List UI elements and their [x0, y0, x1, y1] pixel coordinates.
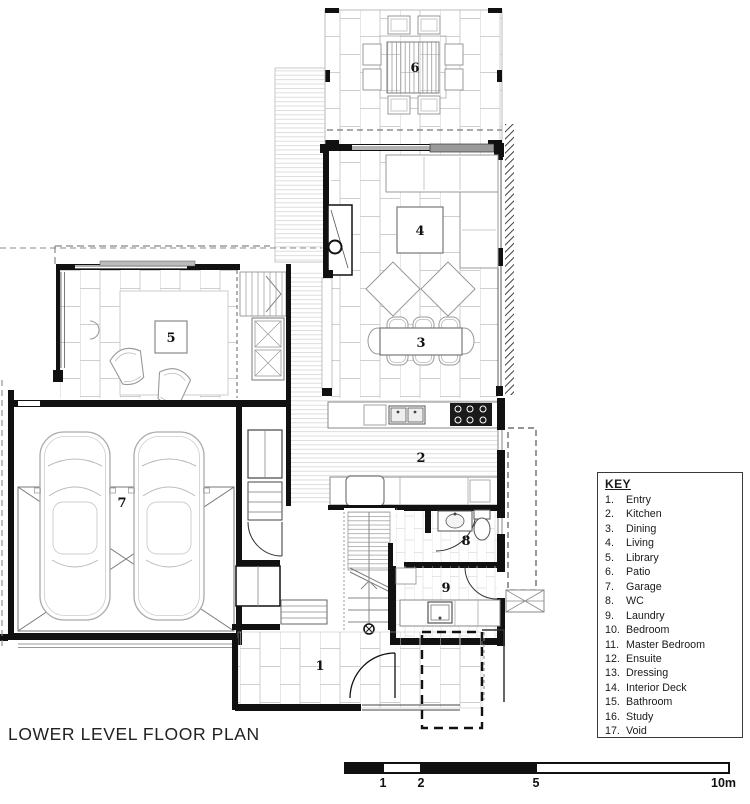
deck-strip [275, 68, 329, 262]
garage-area [0, 390, 291, 648]
patio-chair [418, 96, 440, 114]
entry-steps [281, 600, 327, 624]
room-label-dining: 3 [416, 336, 425, 351]
fireplace [323, 205, 352, 278]
patio-chair [418, 16, 440, 34]
patio-chair [363, 69, 381, 90]
scale-segment [383, 763, 421, 773]
scale-tick-label: 10m [711, 776, 736, 790]
vanity-sink [438, 511, 472, 531]
entry-area [232, 630, 504, 711]
car [35, 432, 116, 620]
room-label-patio: 6 [410, 61, 419, 76]
key-item: 5.Library [605, 551, 737, 565]
laundry-sink [428, 602, 452, 623]
key-item: 3.Dining [605, 522, 737, 536]
key-item: 12.Ensuite [605, 652, 737, 666]
scale-segment [421, 763, 536, 773]
key-item: 17.Void [605, 724, 737, 738]
kitchen-sink [389, 406, 425, 424]
patio-area [325, 8, 502, 146]
plan-title: LOWER LEVEL FLOOR PLAN [8, 724, 260, 745]
key-item: 6.Patio [605, 565, 737, 579]
key-panel: KEY 1.Entry 2.Kitchen 3.Dining 4.Living … [597, 472, 743, 738]
key-item: 7.Garage [605, 580, 737, 594]
patio-chair [363, 44, 381, 65]
room-label-living: 4 [415, 224, 424, 239]
main-stairs [344, 508, 395, 645]
shelving [252, 318, 284, 380]
side-window-box [506, 590, 544, 612]
room-label-kitchen: 2 [416, 451, 425, 466]
patio-chair [388, 16, 410, 34]
mini-stairs [248, 482, 282, 520]
key-item: 13.Dressing [605, 666, 737, 680]
key-item: 9.Laundry [605, 609, 737, 623]
key-item: 15.Bathroom [605, 695, 737, 709]
key-item: 10.Bedroom [605, 623, 737, 637]
key-item: 1.Entry [605, 493, 737, 507]
floor-plan-page: 6 4 3 2 5 7 8 9 1 KEY 1.Entry 2.Kitchen … [0, 0, 750, 804]
kitchen-island [328, 402, 500, 428]
patio-chair [445, 44, 463, 65]
scale-tick-label: 1 [380, 776, 387, 790]
laundry-bench [400, 600, 500, 626]
fridge [346, 476, 384, 506]
patio-chair [445, 69, 463, 90]
key-item: 16.Study [605, 710, 737, 724]
scale-tick-label: 5 [533, 776, 540, 790]
room-label-library: 5 [166, 331, 175, 346]
side-stairs [240, 272, 286, 316]
car [129, 432, 210, 620]
room-label-garage: 7 [117, 496, 126, 511]
scale-tick-label: 2 [418, 776, 425, 790]
patio-chair [388, 96, 410, 114]
wc-area [395, 505, 505, 569]
kitchen-area [291, 398, 505, 510]
key-item: 11.Master Bedroom [605, 638, 737, 652]
kitchen-bench [330, 476, 500, 506]
cooktop [450, 403, 492, 426]
key-item: 14.Interior Deck [605, 681, 737, 695]
key-item: 2.Kitchen [605, 507, 737, 521]
library-area [53, 246, 291, 408]
key-item: 8.WC [605, 594, 737, 608]
scale-bar: 1 2 5 10m [345, 763, 735, 793]
scale-bar-segments [345, 763, 729, 773]
scale-segment [345, 763, 383, 773]
living-area [291, 124, 514, 398]
garage-door [18, 644, 236, 648]
room-label-laundry: 9 [441, 581, 450, 596]
deck-edge-hatch [505, 124, 514, 395]
room-label-entry: 1 [315, 659, 324, 674]
toilet [474, 510, 490, 540]
hall-door [248, 522, 282, 556]
room-label-wc: 8 [461, 534, 470, 549]
key-item: 4.Living [605, 536, 737, 550]
scale-segment [536, 763, 729, 773]
key-header: KEY [605, 477, 737, 491]
